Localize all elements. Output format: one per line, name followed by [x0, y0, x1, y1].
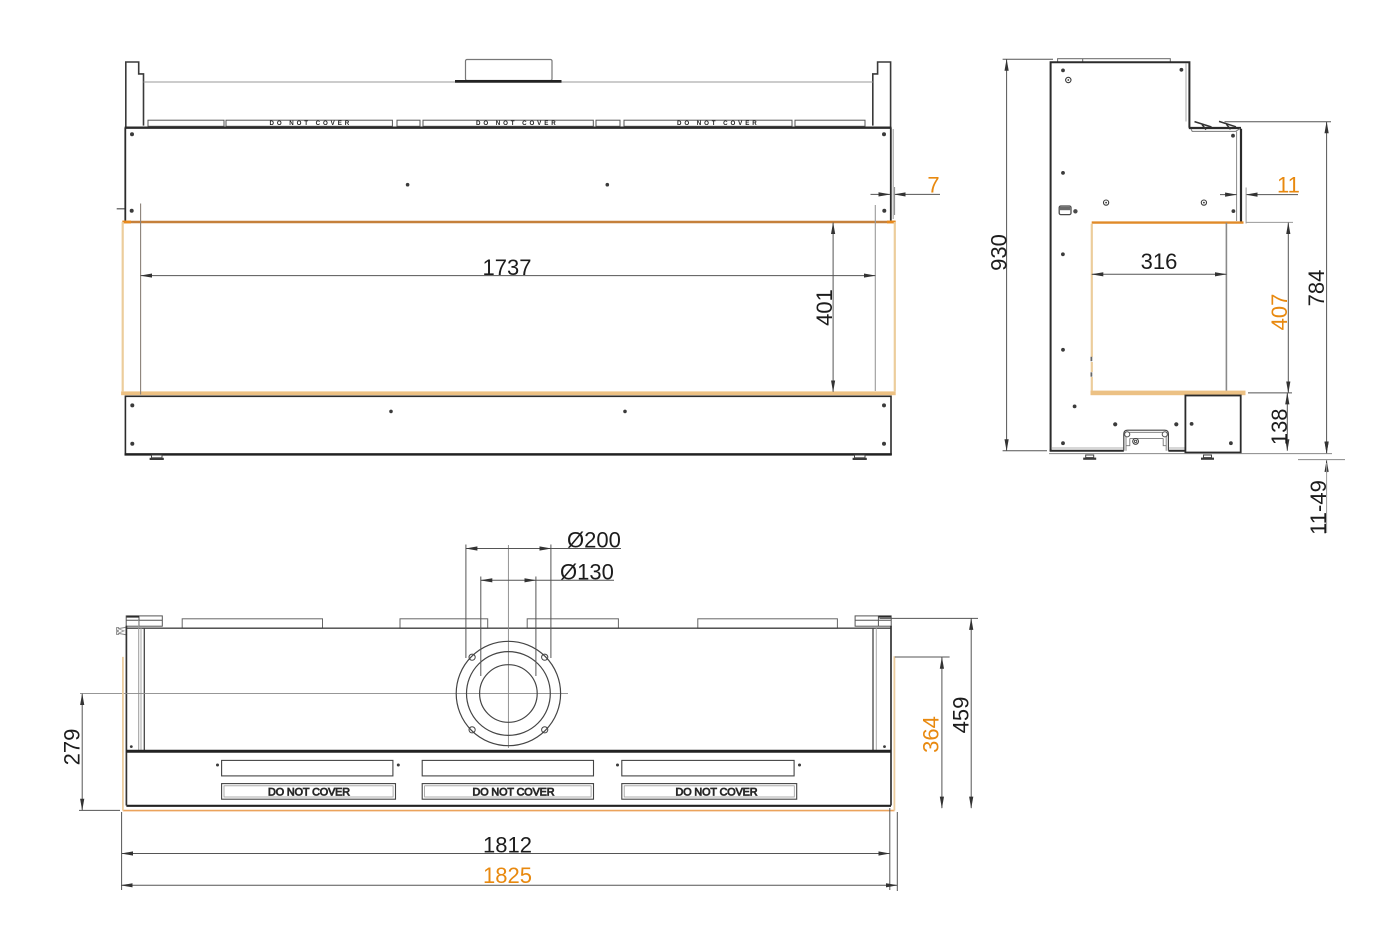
- svg-text:401: 401: [812, 289, 837, 326]
- svg-text:1737: 1737: [483, 255, 532, 280]
- svg-text:138: 138: [1267, 408, 1292, 445]
- svg-text:DO NOT COVER: DO NOT COVER: [476, 120, 559, 127]
- svg-text:DO NOT COVER: DO NOT COVER: [676, 786, 758, 798]
- svg-text:11: 11: [1277, 173, 1300, 198]
- svg-text:364: 364: [919, 716, 944, 753]
- svg-text:784: 784: [1304, 270, 1329, 307]
- svg-text:DO NOT COVER: DO NOT COVER: [677, 120, 760, 127]
- svg-text:459: 459: [948, 697, 973, 734]
- svg-text:DO NOT COVER: DO NOT COVER: [473, 786, 555, 798]
- svg-text:279: 279: [59, 729, 84, 766]
- svg-text:11-49: 11-49: [1306, 480, 1331, 535]
- svg-text:407: 407: [1267, 294, 1292, 331]
- svg-text:Ø200: Ø200: [567, 528, 621, 553]
- svg-text:DO NOT COVER: DO NOT COVER: [268, 786, 350, 798]
- svg-text:7: 7: [927, 173, 939, 198]
- svg-text:Ø130: Ø130: [560, 559, 614, 584]
- svg-text:1825: 1825: [483, 863, 532, 888]
- svg-text:316: 316: [1141, 249, 1178, 274]
- svg-text:DO NOT COVER: DO NOT COVER: [270, 120, 353, 127]
- svg-text:1812: 1812: [483, 833, 532, 858]
- svg-text:930: 930: [986, 234, 1011, 271]
